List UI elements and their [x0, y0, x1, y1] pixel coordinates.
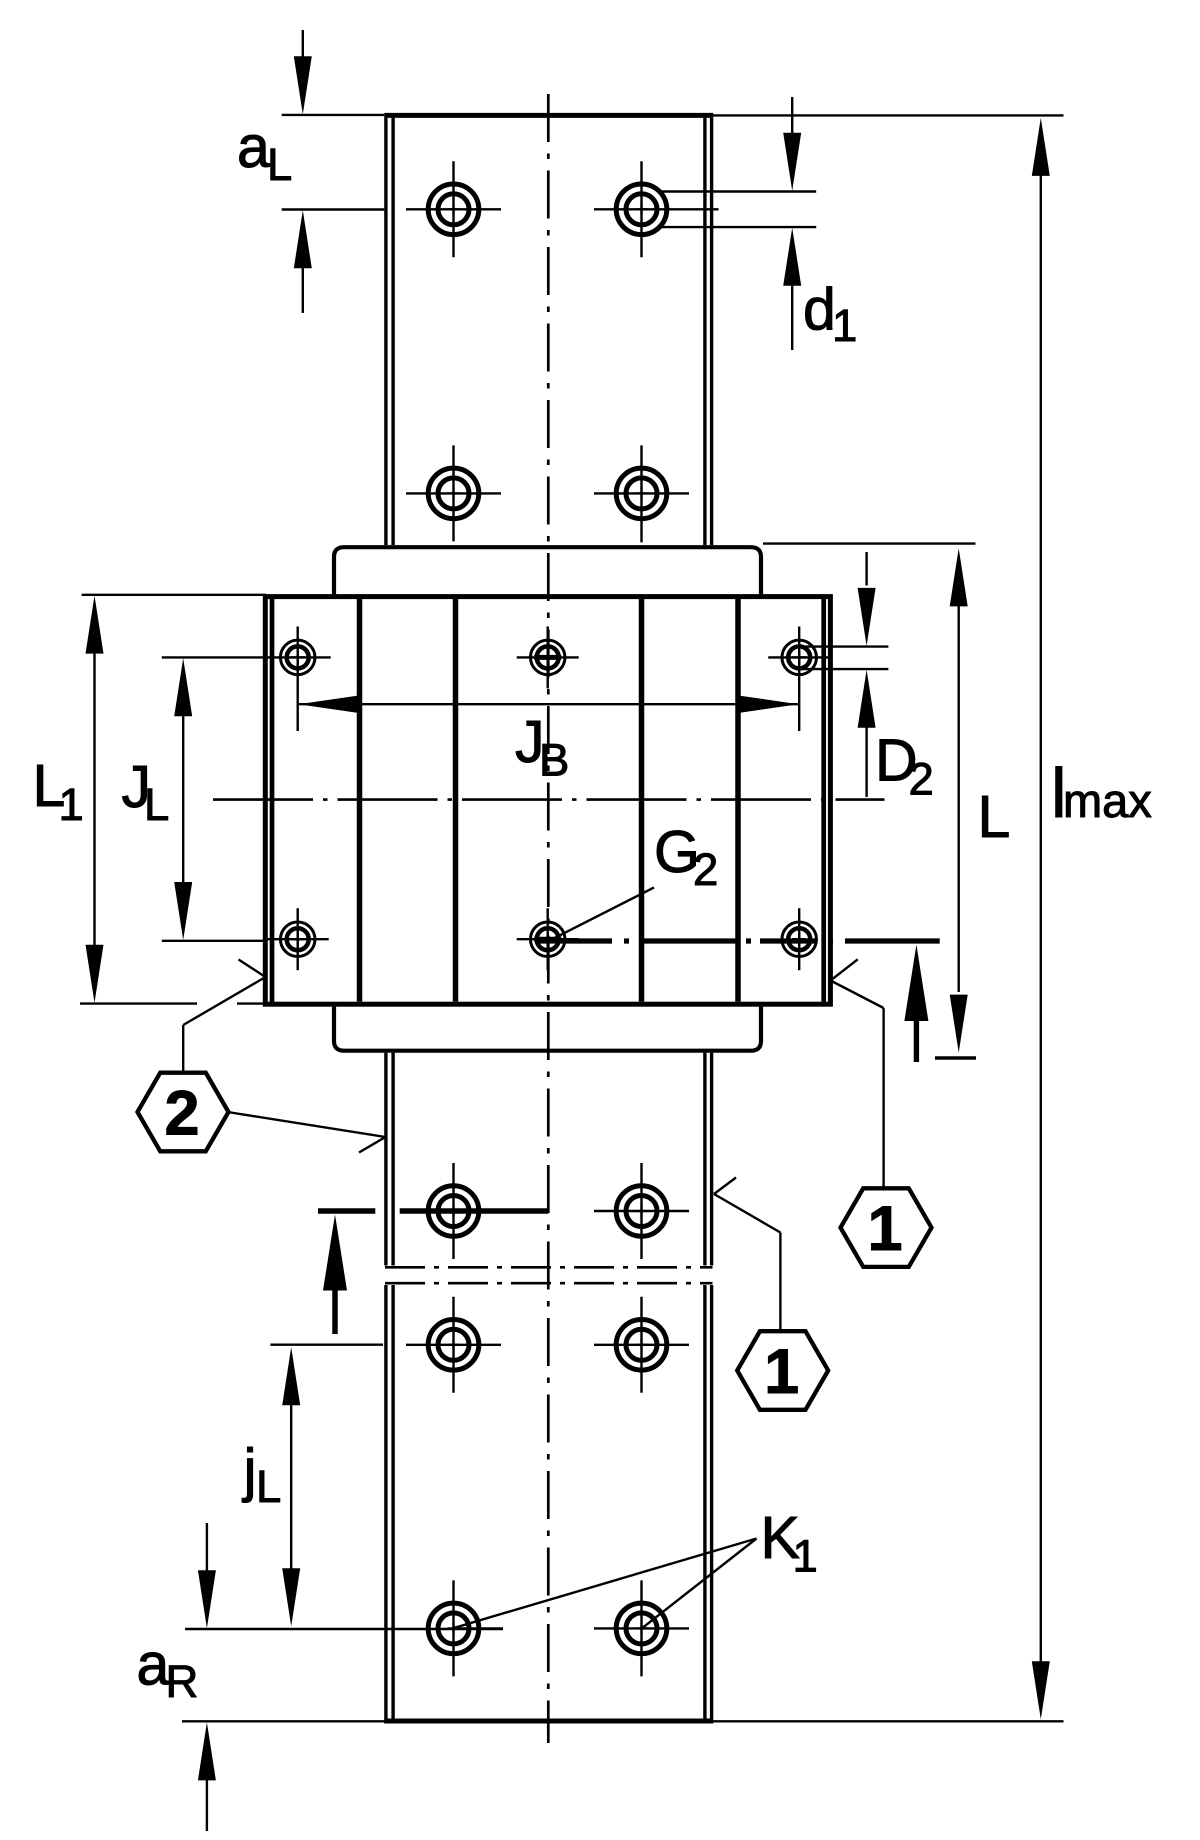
svg-text:2: 2: [909, 754, 934, 805]
svg-text:max: max: [1063, 774, 1152, 827]
svg-text:1: 1: [764, 1337, 799, 1407]
svg-text:j: j: [242, 1437, 257, 1503]
svg-text:L: L: [144, 779, 169, 830]
svg-text:2: 2: [164, 1079, 199, 1149]
svg-text:L: L: [256, 1461, 281, 1512]
svg-text:1: 1: [832, 300, 857, 351]
svg-text:B: B: [539, 735, 569, 786]
svg-text:R: R: [166, 1656, 199, 1707]
svg-text:1: 1: [793, 1531, 818, 1582]
svg-text:a: a: [237, 114, 270, 180]
svg-text:2: 2: [693, 844, 718, 895]
svg-text:d: d: [803, 277, 836, 343]
svg-text:L: L: [978, 784, 1011, 850]
svg-text:L: L: [267, 139, 292, 190]
svg-text:1: 1: [867, 1194, 902, 1264]
svg-text:1: 1: [59, 779, 84, 830]
